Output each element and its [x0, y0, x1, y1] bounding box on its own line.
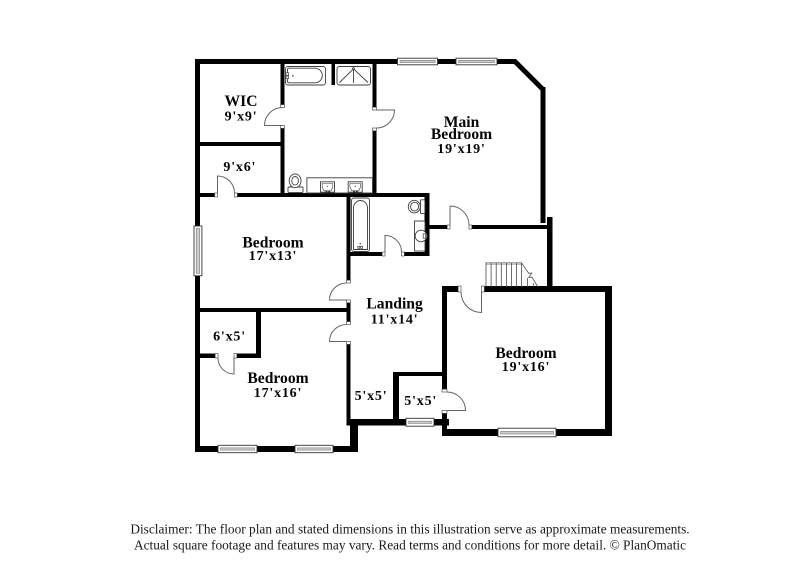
svg-text:Actual square footage and feat: Actual square footage and features may v… — [134, 538, 686, 553]
svg-text:Disclaimer: The floor plan and: Disclaimer: The floor plan and stated di… — [130, 522, 689, 537]
svg-text:Bedroom: Bedroom — [431, 126, 492, 143]
svg-text:6'x5': 6'x5' — [213, 329, 246, 344]
svg-text:Bedroom: Bedroom — [247, 370, 308, 387]
svg-text:11'x14': 11'x14' — [371, 312, 419, 327]
svg-text:9'x6': 9'x6' — [223, 160, 256, 175]
svg-text:Landing: Landing — [366, 296, 423, 313]
svg-text:5'x5': 5'x5' — [355, 389, 388, 404]
svg-text:19'x16': 19'x16' — [502, 360, 550, 375]
svg-text:17'x16': 17'x16' — [254, 386, 302, 401]
svg-text:5'x5': 5'x5' — [404, 394, 437, 409]
svg-text:9'x9': 9'x9' — [225, 109, 258, 124]
svg-text:19'x19': 19'x19' — [437, 142, 485, 157]
svg-text:17'x13': 17'x13' — [249, 249, 297, 264]
svg-text:WIC: WIC — [225, 93, 258, 110]
